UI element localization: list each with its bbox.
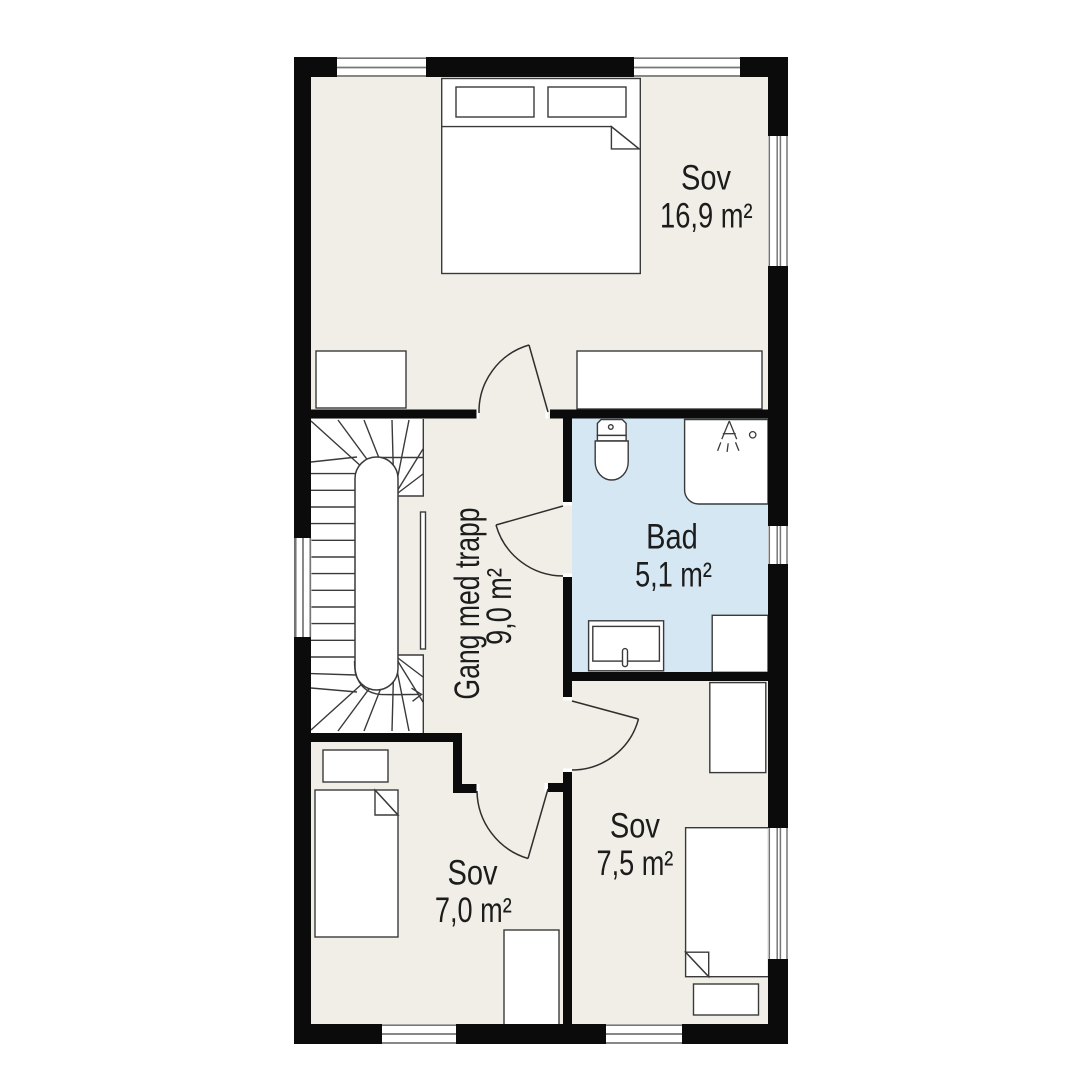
svg-text:Bad: Bad	[646, 517, 698, 556]
svg-text:16,9 m²: 16,9 m²	[660, 196, 753, 235]
svg-text:Sov: Sov	[681, 158, 731, 197]
svg-text:9,0 m²: 9,0 m²	[480, 568, 519, 645]
svg-text:7,0 m²: 7,0 m²	[435, 891, 512, 930]
svg-text:5,1 m²: 5,1 m²	[635, 555, 712, 594]
svg-text:7,5 m²: 7,5 m²	[596, 844, 673, 883]
svg-text:Sov: Sov	[447, 853, 497, 892]
svg-text:Sov: Sov	[610, 806, 660, 845]
